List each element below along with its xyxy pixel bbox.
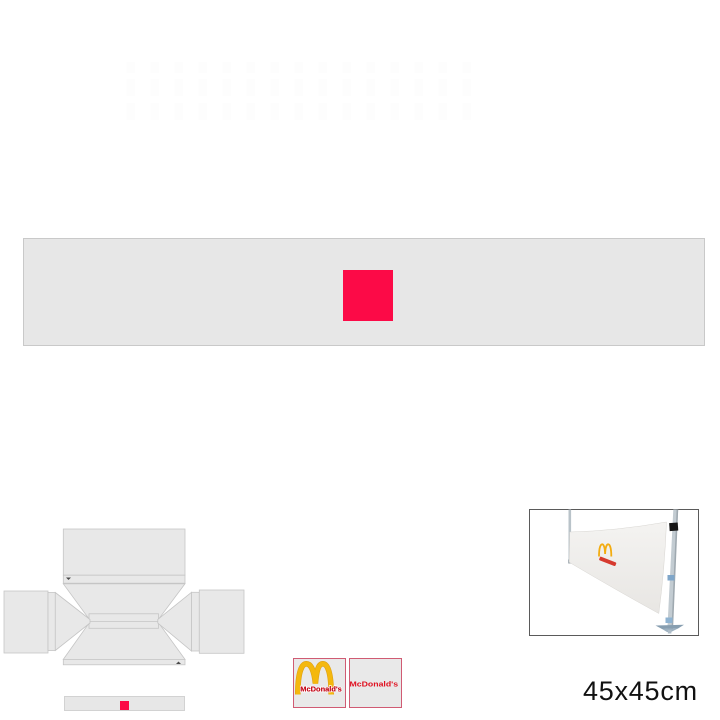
svg-text:McDonald's: McDonald's [350,680,399,689]
svg-text:McDonald's: McDonald's [300,684,342,693]
